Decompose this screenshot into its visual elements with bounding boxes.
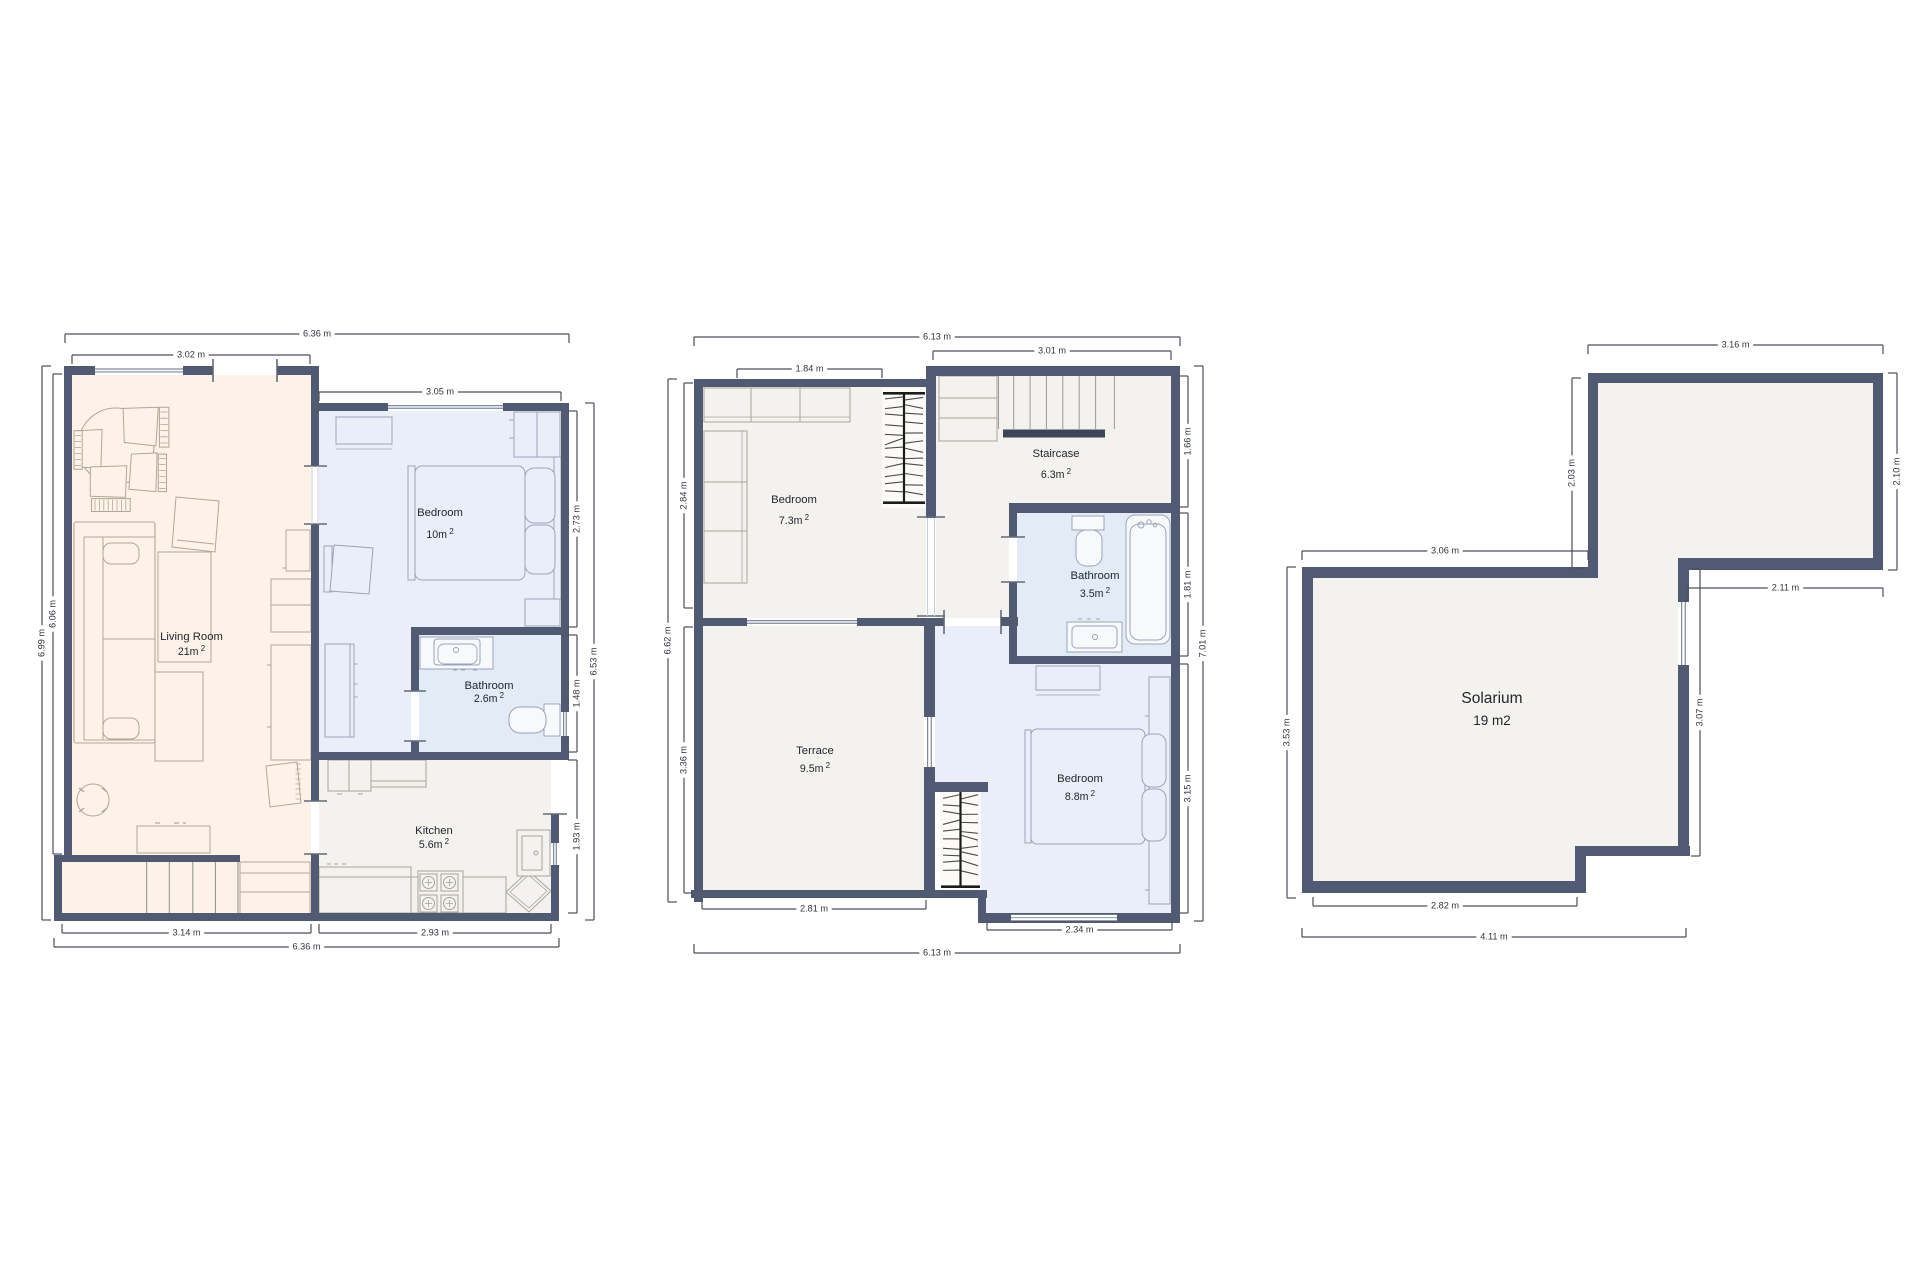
svg-text:Bathroom: Bathroom [1071,570,1120,582]
svg-text:Kitchen: Kitchen [415,825,453,837]
svg-text:6.13 m: 6.13 m [923,948,951,958]
svg-text:7.01 m: 7.01 m [1198,629,1208,657]
svg-text:3.36 m: 3.36 m [679,746,689,774]
svg-text:1.81 m: 1.81 m [1183,570,1193,598]
svg-text:3.06 m: 3.06 m [1431,546,1459,556]
svg-text:6.62 m: 6.62 m [663,626,673,654]
svg-text:1.48 m: 1.48 m [572,679,582,707]
svg-text:4.11 m: 4.11 m [1480,932,1508,942]
svg-text:Bedroom: Bedroom [1057,773,1103,785]
svg-text:Terrace: Terrace [796,745,834,757]
svg-text:Bedroom: Bedroom [771,494,817,506]
svg-text:3.01 m: 3.01 m [1038,346,1066,356]
svg-text:3.05 m: 3.05 m [426,387,454,397]
svg-text:2.10 m: 2.10 m [1892,457,1902,485]
svg-text:6.06 m: 6.06 m [48,600,58,628]
svg-text:Solarium: Solarium [1461,690,1522,707]
svg-text:1.66 m: 1.66 m [1183,427,1193,455]
svg-text:2.93 m: 2.93 m [421,928,449,938]
svg-text:1.93 m: 1.93 m [572,822,582,850]
svg-text:19 m2: 19 m2 [1473,713,1511,728]
svg-text:2.03 m: 2.03 m [1567,459,1577,487]
svg-text:6.36 m: 6.36 m [292,942,320,952]
svg-text:Staircase: Staircase [1032,448,1079,460]
svg-text:2.84 m: 2.84 m [679,481,689,509]
svg-text:6.99 m: 6.99 m [37,629,47,657]
svg-text:3.02 m: 3.02 m [177,350,205,360]
svg-text:2.82 m: 2.82 m [1431,901,1459,911]
svg-text:6.36 m: 6.36 m [303,329,331,339]
svg-text:1.84 m: 1.84 m [795,364,823,374]
svg-text:3.16 m: 3.16 m [1721,340,1749,350]
svg-text:3.15 m: 3.15 m [1183,774,1193,802]
svg-text:6.13 m: 6.13 m [923,332,951,342]
svg-text:Bathroom: Bathroom [465,680,514,692]
svg-text:2.73 m: 2.73 m [572,505,582,533]
svg-text:Living Room: Living Room [160,631,223,643]
svg-text:2.81 m: 2.81 m [800,904,828,914]
svg-text:2.34 m: 2.34 m [1065,925,1093,935]
svg-text:3.14 m: 3.14 m [172,928,200,938]
svg-text:6.53 m: 6.53 m [589,647,599,675]
svg-text:2.11 m: 2.11 m [1772,583,1800,593]
svg-text:Bedroom: Bedroom [417,507,463,519]
svg-text:3.53 m: 3.53 m [1282,718,1292,746]
svg-text:3.07 m: 3.07 m [1695,698,1705,726]
